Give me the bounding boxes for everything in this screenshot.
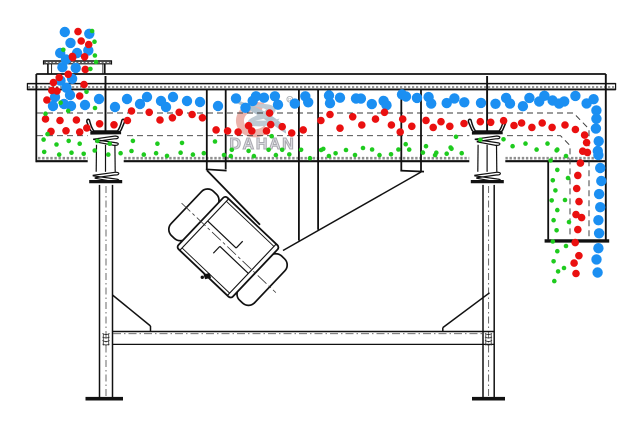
svg-text:DAHAN: DAHAN bbox=[229, 136, 295, 153]
